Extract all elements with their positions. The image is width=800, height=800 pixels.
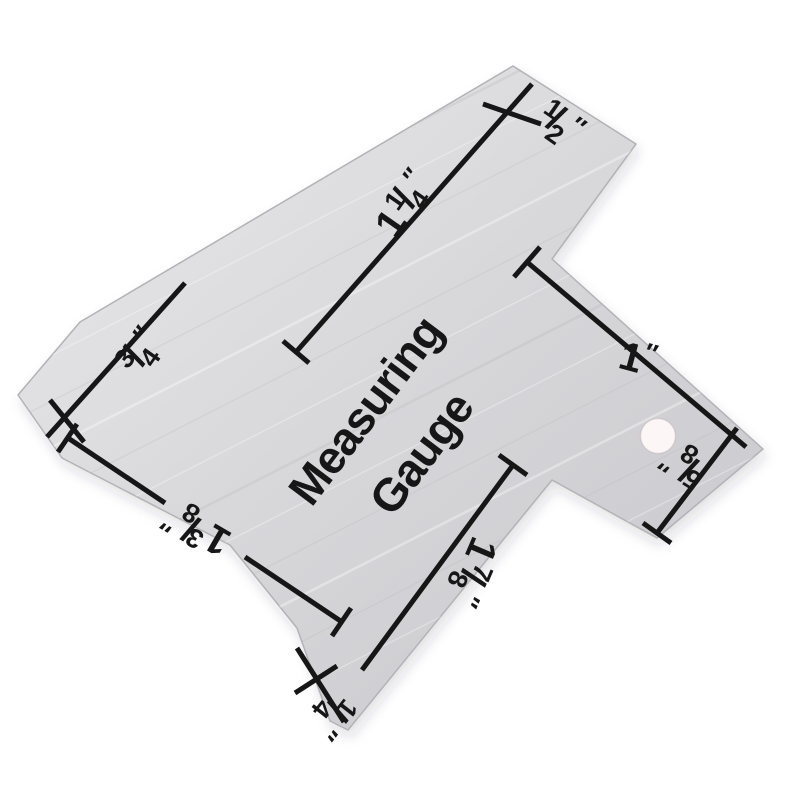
product-photo: 1/2″11/4″3/4″13/8″1/4″17/8″5/8″1″ Measur…: [0, 0, 800, 800]
gauge-hole: [641, 419, 676, 454]
metal-streak: [0, 0, 800, 136]
metal-streak: [0, 0, 800, 90]
measuring-gauge-scene: 1/2″11/4″3/4″13/8″1/4″17/8″5/8″1″ Measur…: [0, 0, 800, 800]
